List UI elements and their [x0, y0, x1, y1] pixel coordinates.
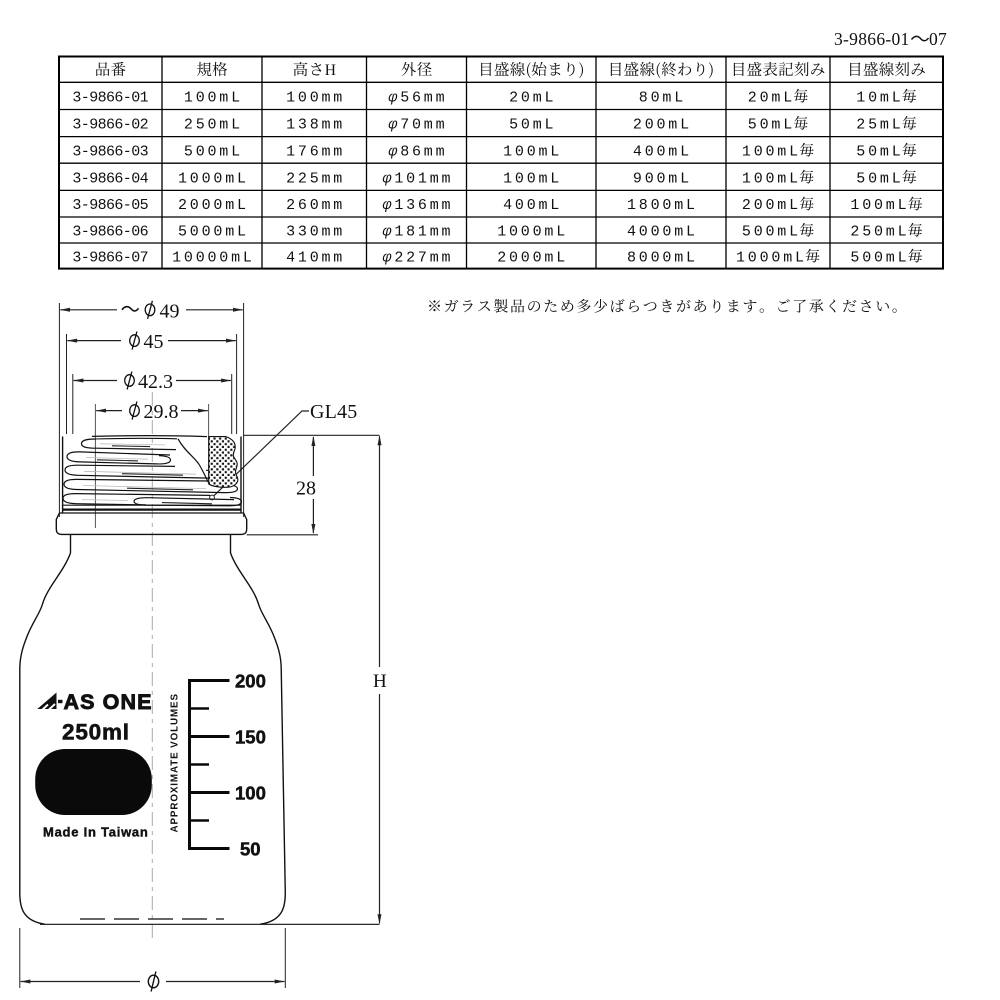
- svg-text:100mL: 100mL: [184, 89, 243, 106]
- svg-text:500mL: 500mL: [742, 224, 801, 241]
- svg-text:3-9866-05: 3-9866-05: [72, 197, 148, 214]
- svg-text:1800mL: 1800mL: [627, 197, 698, 214]
- svg-text:50mL: 50mL: [748, 117, 795, 134]
- svg-text:φ136mm: φ136mm: [383, 197, 454, 214]
- svg-text:42.3: 42.3: [138, 371, 173, 393]
- svg-text:APPROXIMATE VOLUMES: APPROXIMATE VOLUMES: [170, 693, 181, 832]
- svg-text:Made In Taiwan: Made In Taiwan: [43, 825, 149, 840]
- svg-text:3-9866-01: 3-9866-01: [72, 89, 148, 106]
- svg-text:500mL: 500mL: [184, 143, 243, 160]
- svg-text:200: 200: [235, 671, 266, 692]
- svg-text:2000mL: 2000mL: [178, 197, 249, 214]
- svg-text:φ101mm: φ101mm: [383, 170, 454, 187]
- svg-text:H: H: [325, 62, 336, 79]
- svg-text:3-9866-04: 3-9866-04: [72, 170, 148, 187]
- svg-text:100mL: 100mL: [742, 170, 801, 187]
- svg-text:138mm: 138mm: [286, 117, 345, 134]
- svg-text:3-9866-07: 3-9866-07: [72, 249, 148, 266]
- svg-text:1000mL: 1000mL: [497, 224, 568, 241]
- svg-text:500mL: 500mL: [850, 249, 909, 266]
- svg-text:400mL: 400mL: [633, 143, 692, 160]
- svg-text:100mm: 100mm: [286, 89, 345, 106]
- svg-text:φ56mm: φ56mm: [388, 89, 447, 106]
- svg-text:200mL: 200mL: [742, 197, 801, 214]
- svg-text:250ml: 250ml: [62, 720, 130, 745]
- svg-text:50: 50: [240, 839, 261, 860]
- svg-text:410mm: 410mm: [286, 249, 345, 266]
- svg-text:100mL: 100mL: [850, 197, 909, 214]
- svg-text:4000mL: 4000mL: [627, 224, 698, 241]
- svg-text:20mL: 20mL: [509, 89, 556, 106]
- svg-text:10mL: 10mL: [856, 89, 903, 106]
- svg-text:3-9866-06: 3-9866-06: [72, 224, 148, 241]
- svg-text:φ86mm: φ86mm: [388, 143, 447, 160]
- svg-text:07: 07: [929, 29, 947, 49]
- svg-text:45: 45: [144, 331, 164, 353]
- svg-text:3-9866-03: 3-9866-03: [72, 143, 148, 160]
- svg-text:φ181mm: φ181mm: [383, 224, 454, 241]
- svg-text:176mm: 176mm: [286, 143, 345, 160]
- svg-text:3-9866-01: 3-9866-01: [834, 29, 910, 49]
- svg-text:260mm: 260mm: [286, 197, 345, 214]
- svg-text:5000mL: 5000mL: [178, 224, 249, 241]
- svg-text:330mm: 330mm: [286, 224, 345, 241]
- svg-text:80mL: 80mL: [639, 89, 686, 106]
- svg-text:50mL: 50mL: [509, 117, 556, 134]
- svg-text:H: H: [373, 671, 387, 692]
- svg-text:150: 150: [235, 727, 266, 748]
- svg-text:250mL: 250mL: [850, 224, 909, 241]
- svg-text:100: 100: [235, 783, 266, 804]
- svg-text:200mL: 200mL: [633, 117, 692, 134]
- svg-text:1000mL: 1000mL: [178, 170, 249, 187]
- svg-text:100mL: 100mL: [503, 143, 562, 160]
- svg-text:250mL: 250mL: [184, 117, 243, 134]
- svg-text:GL45: GL45: [310, 401, 357, 423]
- svg-text:φ227mm: φ227mm: [383, 249, 454, 266]
- svg-text:50mL: 50mL: [856, 143, 903, 160]
- svg-text:20mL: 20mL: [748, 89, 795, 106]
- svg-text:25mL: 25mL: [856, 117, 903, 134]
- svg-text:225mm: 225mm: [286, 170, 345, 187]
- svg-text:2000mL: 2000mL: [497, 249, 568, 266]
- svg-text:8000mL: 8000mL: [627, 249, 698, 266]
- svg-text:29.8: 29.8: [144, 401, 179, 423]
- svg-text:28: 28: [296, 477, 316, 499]
- svg-text:100mL: 100mL: [503, 170, 562, 187]
- svg-text:1000mL: 1000mL: [736, 249, 807, 266]
- svg-text:3-9866-02: 3-9866-02: [72, 117, 148, 134]
- svg-text:AS ONE: AS ONE: [64, 690, 153, 714]
- svg-text:49: 49: [160, 300, 180, 322]
- svg-text:400mL: 400mL: [503, 197, 562, 214]
- svg-text:50mL: 50mL: [856, 170, 903, 187]
- svg-text:100mL: 100mL: [742, 143, 801, 160]
- svg-text:φ70mm: φ70mm: [388, 117, 447, 134]
- svg-text:900mL: 900mL: [633, 170, 692, 187]
- svg-text:10000mL: 10000mL: [172, 249, 255, 266]
